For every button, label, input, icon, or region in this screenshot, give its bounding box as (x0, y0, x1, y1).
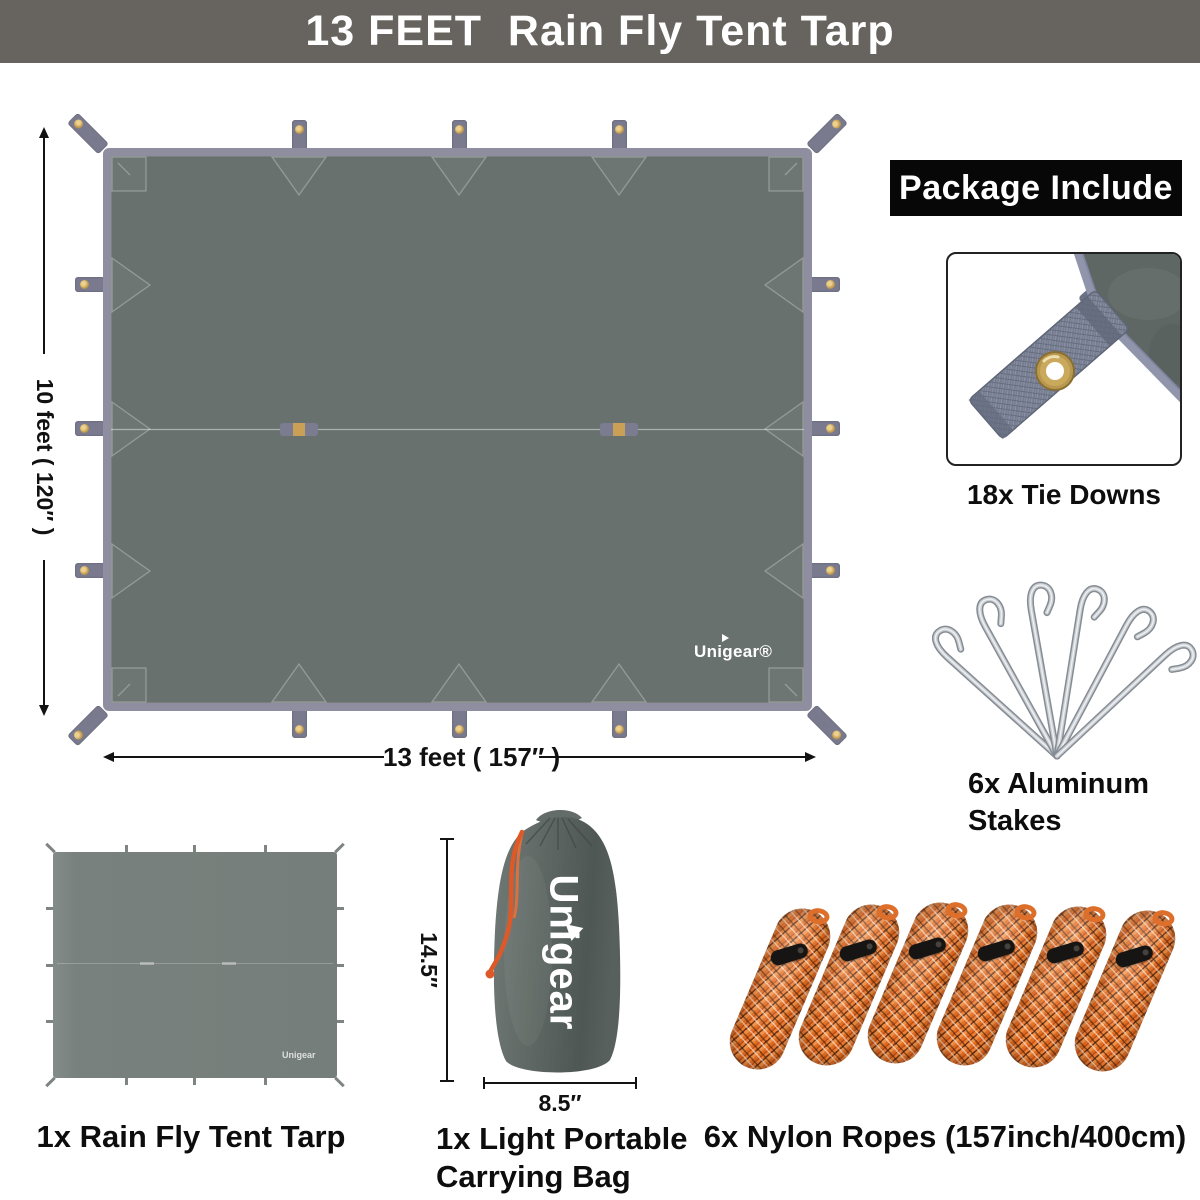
mini-seam-loop (222, 962, 236, 965)
mini-tarp-graphic (53, 852, 337, 1078)
aluminum-stakes-illustration (912, 550, 1200, 762)
tarp-brand-logo: Unigear® (694, 642, 772, 662)
tie-downs-label: 18x Tie Downs (946, 476, 1182, 513)
tarp-item-label: 1x Rain Fly Tent Tarp (36, 1118, 346, 1155)
dimension-cap (440, 1080, 454, 1082)
rope-tensioner (1045, 940, 1086, 965)
brand-flag-icon (722, 634, 729, 642)
mini-corner-tab (334, 1077, 345, 1088)
mini-corner-tab (45, 1077, 56, 1088)
grommet-icon (80, 424, 89, 433)
rope-tensioner (1114, 944, 1155, 969)
grommet-icon (295, 725, 304, 734)
mini-seam (57, 963, 333, 964)
grommet-icon (80, 280, 89, 289)
width-dimension-label: 13 feet ( 157″ ) (383, 742, 539, 773)
height-dimension-label: 10 feet ( 120″ ) (32, 356, 58, 558)
grommet-icon (295, 125, 304, 134)
grommet-icon (826, 280, 835, 289)
ropes-group (752, 898, 1192, 1078)
tie-down-photo (946, 252, 1182, 466)
page-title: 13 FEET Rain Fly Tent Tarp (305, 7, 894, 56)
dimension-line (539, 756, 805, 758)
arrow-left-icon (103, 752, 114, 762)
mini-brand-logo: Unigear (282, 1050, 316, 1060)
arrow-up-icon (39, 127, 49, 138)
bag-width-label: 8.5″ (520, 1090, 600, 1117)
dimension-line (43, 560, 45, 706)
dimension-line (446, 840, 448, 1082)
grommet-icon (80, 566, 89, 575)
grommet-icon (615, 725, 624, 734)
product-infographic: 13 FEET Rain Fly Tent Tarp (0, 0, 1200, 1200)
bag-brand-text: Unigear (541, 868, 586, 1038)
grommet-icon (72, 729, 85, 742)
rope-tensioner (976, 938, 1017, 963)
grommet-icon (830, 118, 843, 131)
tarp-detail-overlay (103, 148, 812, 711)
ropes-item-label: 6x Nylon Ropes (157inch/400cm) (695, 1118, 1195, 1155)
stakes-label: 6x Aluminum Stakes (968, 766, 1200, 840)
grommet-icon (826, 566, 835, 575)
bag-height-label: 14.5″ (418, 925, 442, 995)
rope-tensioner (838, 938, 879, 963)
tie-down-illustration (948, 254, 1182, 466)
grommet-icon (615, 125, 624, 134)
rope-tensioner (769, 942, 810, 967)
title-banner: 13 FEET Rain Fly Tent Tarp (0, 0, 1200, 63)
arrow-down-icon (39, 705, 49, 716)
brand-text: Unigear® (694, 642, 772, 661)
corner-tie-down-tab (806, 113, 848, 155)
package-include-title: Package Include (899, 169, 1173, 208)
grommet-icon (826, 424, 835, 433)
grommet-icon (455, 725, 464, 734)
corner-tie-down-tab (806, 705, 848, 747)
bag-item-label: 1x Light Portable Carrying Bag (436, 1120, 694, 1196)
package-include-header: Package Include (890, 160, 1182, 216)
seam-loop (600, 423, 638, 436)
dimension-line (43, 138, 45, 354)
mini-seam-loop (140, 962, 154, 965)
arrow-right-icon (805, 752, 816, 762)
seam-loop (280, 423, 318, 436)
dimension-line (114, 756, 384, 758)
grommet-icon (72, 118, 85, 131)
grommet-icon (455, 125, 464, 134)
grommet-icon (830, 729, 843, 742)
rope-tensioner (907, 936, 948, 961)
